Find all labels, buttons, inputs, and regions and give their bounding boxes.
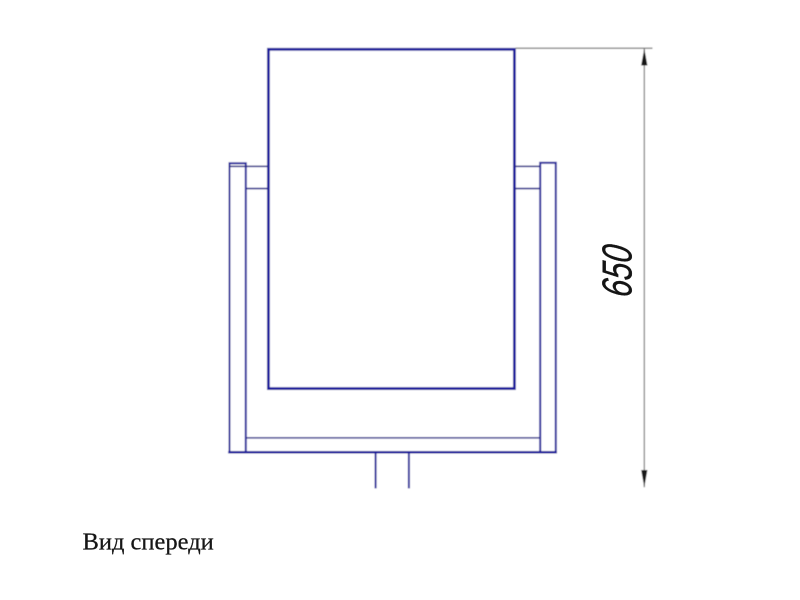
svg-text:Вид спереди: Вид спереди: [83, 529, 214, 556]
svg-text:650: 650: [593, 241, 641, 299]
